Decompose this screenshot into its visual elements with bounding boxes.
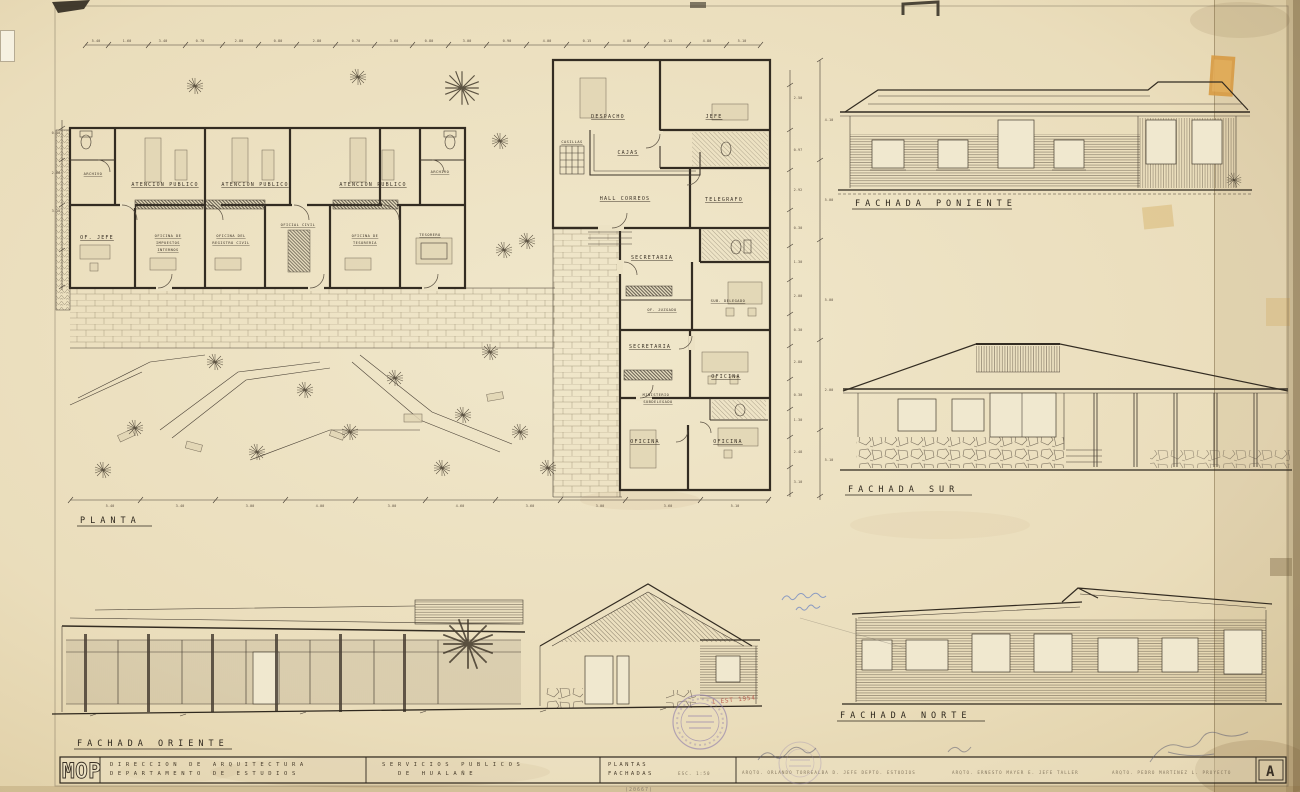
dimension-label: 1.30 — [794, 260, 803, 264]
dimension-label: 4.00 — [623, 39, 632, 43]
dimension-label: 4.10 — [825, 118, 834, 122]
room-label-tesorero: TESORERO — [419, 233, 440, 237]
dimension-label: 0.30 — [794, 328, 803, 332]
garden — [70, 69, 556, 478]
facade-oriente: FACHADA ORIENTE — [52, 584, 762, 749]
signature-2: ARQTO. ERNESTO MAYER E. JEFE TALLER — [952, 770, 1079, 775]
dimension-label: 0.30 — [794, 226, 803, 230]
room-label-oficina-3: OFICINA — [713, 439, 742, 445]
dimension-label: 3.60 — [390, 39, 399, 43]
dimension-label: 4.60 — [456, 504, 465, 508]
content-line-2: FACHADAS — [608, 771, 654, 777]
tape-dark-spot — [1270, 558, 1292, 576]
dimension-label: 3.00 — [463, 39, 472, 43]
room-label-atencion-1: ATENCION PUBLICO — [131, 182, 198, 188]
room-label-impuestos-3: INTERNOS — [157, 248, 178, 252]
room-label-archivo-right: ARCHIVO — [431, 170, 450, 174]
facade-norte: FACHADA NORTE — [837, 588, 1282, 721]
paved-terrace — [70, 288, 555, 348]
tape-right-edge — [1266, 298, 1290, 326]
room-label-impuestos-1: OFICINA DE — [155, 234, 182, 238]
dimension-label: 0.40 — [52, 131, 61, 135]
dimension-label: 5.10 — [731, 504, 740, 508]
drawing-layer: 5.401.603.400.702.800.802.800.703.600.80… — [0, 0, 1300, 792]
dimension-label: 5.10 — [738, 39, 747, 43]
dimension-label: 3.10 — [794, 480, 803, 484]
project-line-2: DE HUALAÑE — [398, 770, 477, 777]
room-label-oficial-civil: OFICIAL CIVIL — [281, 223, 316, 227]
dimension-label: 0.70 — [196, 39, 205, 43]
facade-poniente: FACHADA PONIENTE — [838, 82, 1252, 209]
drawing-sheet: 5.401.603.400.702.800.802.800.703.600.80… — [0, 0, 1300, 792]
dimension-label: 5.40 — [92, 39, 101, 43]
dimension-label: 3.40 — [159, 39, 168, 43]
handwritten-blue-note — [782, 593, 826, 610]
dimension-label: 4.00 — [543, 39, 552, 43]
dimension-label: 2.80 — [794, 360, 803, 364]
title-block: MOP DIRECCION DE ARQUITECTURA DEPARTAMEN… — [60, 757, 1286, 792]
dimension-label: 0.80 — [425, 39, 434, 43]
dimension-label: 0.97 — [794, 148, 803, 152]
dimension-label: 2.98 — [52, 171, 61, 175]
tape-faint — [1142, 204, 1174, 229]
room-label-telegrafo: TELEGRAFO — [705, 197, 743, 203]
dimension-label: 0.80 — [274, 39, 283, 43]
room-label-ministerio-1: MINISTERIO — [643, 393, 670, 397]
room-label-archivo-left: ARCHIVO — [84, 172, 103, 176]
dimension-label: 2.48 — [794, 450, 803, 454]
dimension-label: 5.40 — [106, 504, 115, 508]
dimension-label: 3.40 — [176, 504, 185, 508]
dimension-label: 2.80 — [235, 39, 244, 43]
room-label-secretaria-2: SECRETARIA — [629, 344, 671, 350]
dimension-label: 5.10 — [825, 458, 834, 462]
room-label-tesoreria-1: OFICINA DE — [352, 234, 379, 238]
dimension-label: 0.70 — [352, 39, 361, 43]
dimension-label: 2.92 — [794, 188, 803, 192]
project-line-1: SERVICIOS PUBLICOS — [382, 762, 524, 768]
content-line-1: PLANTAS — [608, 762, 648, 768]
floor-plan: 5.401.603.400.702.800.802.800.703.600.80… — [52, 39, 834, 526]
fold-marks — [52, 0, 938, 16]
facade-norte-label: FACHADA NORTE — [840, 711, 972, 721]
pencil-number: (20667) — [625, 787, 653, 792]
room-label-secretaria-1: SECRETARIA — [631, 255, 673, 261]
dimension-label: 0.90 — [503, 39, 512, 43]
room-label-sub-delegado: SUB. DELEGADO — [711, 299, 746, 303]
room-label-cajas: CAJAS — [617, 150, 638, 156]
dimension-label: 3.00 — [596, 504, 605, 508]
room-label-jefe: JEFE — [706, 114, 723, 120]
room-label-tesoreria-2: TESORERIA — [353, 241, 377, 245]
room-label-atencion-3: ATENCION PUBLICO — [339, 182, 406, 188]
dimension-label: 0.30 — [794, 393, 803, 397]
room-label-despacho: DESPACHO — [591, 114, 625, 120]
room-label-of-jefe: OF. JEFE — [80, 235, 114, 241]
room-label-atencion-2: ATENCION PUBLICO — [221, 182, 288, 188]
dimension-label: 2.00 — [794, 294, 803, 298]
facade-sur-label: FACHADA SUR — [848, 485, 959, 495]
room-label-oficina-2: OFICINA — [630, 439, 659, 445]
mop-logo: MOP — [62, 759, 101, 783]
dimension-label: 3.60 — [664, 504, 673, 508]
facade-oriente-label: FACHADA ORIENTE — [77, 739, 229, 749]
room-label-ministerio-2: SUBDELEGADO — [643, 400, 672, 404]
scale-note: ESC. 1:50 — [678, 771, 711, 776]
room-label-registro-1: OFICINA DEL — [216, 234, 245, 238]
dimension-label: 2.00 — [825, 388, 834, 392]
signature-3: ARQTO. PEDRO MARTINEZ L. PROYECTO — [1112, 770, 1232, 775]
hedge-strip — [56, 130, 70, 310]
dimension-label: 5.00 — [825, 198, 834, 202]
stamp-monogram: A — [1266, 764, 1275, 780]
signature-1: ARQTO. ORLANDO TORREALBA D. JEFE DEPTO. … — [742, 770, 916, 775]
org-line-2: DEPARTAMENTO DE ESTUDIOS — [110, 771, 300, 777]
dimension-label: 1.30 — [794, 418, 803, 422]
org-line-1: DIRECCION DE ARQUITECTURA — [110, 762, 308, 768]
dimension-label: 3.00 — [388, 504, 397, 508]
paved-walk — [553, 228, 620, 497]
dimension-label: 3.00 — [246, 504, 255, 508]
facade-sur: FACHADA SUR — [840, 344, 1292, 495]
left-wing — [70, 128, 465, 291]
room-label-casillas: CASILLAS — [561, 140, 582, 144]
dimension-label: 5.00 — [825, 298, 834, 302]
dimension-label: 1.60 — [123, 39, 132, 43]
dimension-label: 3.60 — [526, 504, 535, 508]
dimension-label: 3.10 — [52, 209, 61, 213]
room-label-oficina-1: OFICINA — [711, 374, 740, 380]
dimension-label: 2.80 — [313, 39, 322, 43]
room-label-impuestos-2: IMPUESTOS — [156, 241, 180, 245]
room-label-hall-correos: HALL CORREOS — [600, 196, 651, 202]
dimension-label: 2.50 — [794, 96, 803, 100]
dimension-label: 0.15 — [664, 39, 673, 43]
dimension-label: 0.15 — [583, 39, 592, 43]
dimension-label: 4.80 — [703, 39, 712, 43]
plan-title: PLANTA — [80, 516, 141, 526]
dimension-label: 4.00 — [316, 504, 325, 508]
room-label-registro-2: REGISTRO CIVIL — [212, 241, 249, 245]
room-label-of-juzgado: OF. JUZGADO — [647, 308, 676, 312]
facade-poniente-label: FACHADA PONIENTE — [855, 199, 1017, 209]
